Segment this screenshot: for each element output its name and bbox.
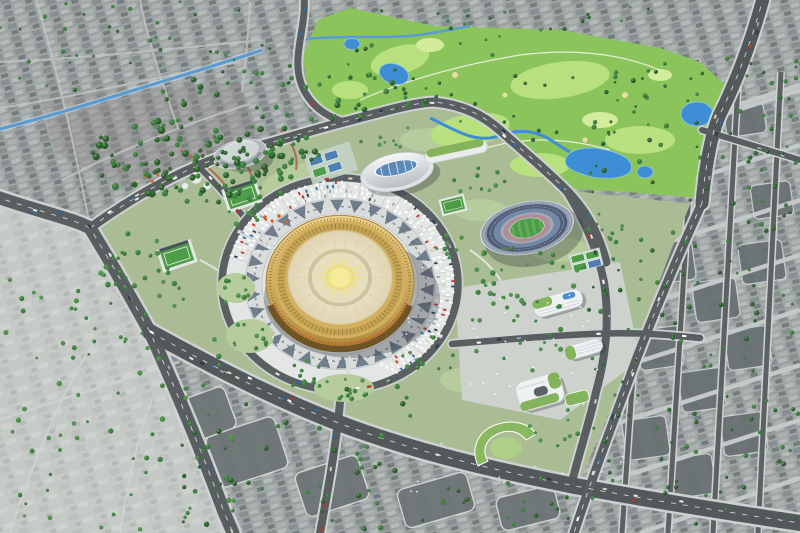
parked-car: [442, 285, 446, 287]
tree-highlight: [399, 145, 401, 147]
tree-highlight: [302, 382, 305, 385]
tree-highlight: [217, 200, 219, 202]
tree-highlight: [451, 354, 453, 356]
tree-highlight: [189, 117, 191, 119]
tree-highlight: [227, 192, 230, 195]
tree-highlight: [512, 523, 514, 525]
tree-highlight: [457, 489, 459, 491]
tree-highlight: [69, 61, 70, 62]
tree-highlight: [476, 290, 479, 293]
tree-highlight: [764, 229, 766, 231]
tree-highlight: [750, 62, 752, 64]
tree-highlight: [74, 299, 77, 302]
tree-highlight: [568, 434, 570, 436]
tree-highlight: [685, 241, 687, 243]
tree-highlight: [228, 189, 231, 192]
tree-highlight: [782, 294, 784, 296]
tree-highlight: [607, 131, 609, 133]
tree-highlight: [108, 25, 110, 27]
tree-highlight: [536, 300, 538, 302]
tree-highlight: [242, 276, 244, 278]
tree-highlight: [651, 180, 653, 182]
tree-highlight: [206, 414, 208, 416]
tree-highlight: [656, 281, 658, 283]
tree-highlight: [589, 171, 591, 173]
parked-car: [341, 181, 343, 184]
tree-highlight: [409, 414, 411, 416]
tree-highlight: [175, 186, 177, 188]
tree-highlight: [445, 252, 447, 254]
pedestrian: [256, 265, 258, 267]
pedestrian: [408, 317, 410, 319]
tree-highlight: [251, 125, 253, 127]
tree-highlight: [607, 236, 609, 238]
tree-highlight: [344, 378, 346, 380]
tree-highlight: [795, 66, 796, 67]
tree-highlight: [754, 151, 756, 153]
tree-highlight: [206, 182, 208, 184]
pedestrian: [408, 322, 410, 324]
tree-highlight: [621, 224, 623, 226]
tree-highlight: [443, 247, 445, 249]
tree-highlight: [126, 232, 129, 235]
tree-highlight: [567, 517, 569, 519]
tree-highlight: [752, 405, 754, 407]
tree-highlight: [617, 414, 619, 416]
tree-highlight: [762, 114, 764, 116]
tree-highlight: [558, 347, 561, 350]
tree-highlight: [243, 323, 245, 325]
tree-highlight: [213, 135, 215, 137]
tree-highlight: [591, 191, 592, 192]
tree-highlight: [70, 307, 72, 309]
tree-highlight: [524, 82, 526, 84]
pedestrian: [564, 304, 566, 306]
tree-highlight: [261, 328, 263, 330]
tree-highlight: [522, 500, 524, 502]
tree-highlight: [460, 236, 462, 238]
tree-highlight: [539, 348, 541, 350]
pedestrian: [504, 312, 506, 314]
tree-highlight: [659, 143, 661, 145]
tree-highlight: [312, 381, 314, 383]
tree-highlight: [521, 508, 523, 510]
tree-highlight: [232, 499, 234, 501]
pedestrian: [476, 336, 478, 338]
parked-car: [442, 280, 446, 282]
tree-highlight: [158, 457, 161, 460]
tree-highlight: [49, 473, 51, 475]
tree-highlight: [582, 265, 584, 267]
tree-highlight: [591, 357, 593, 359]
tree-highlight: [643, 94, 645, 96]
pedestrian: [502, 299, 504, 301]
tree-highlight: [766, 150, 768, 152]
tree-highlight: [758, 431, 760, 433]
pedestrian: [569, 294, 571, 296]
tree-highlight: [534, 431, 535, 432]
tree-highlight: [254, 207, 256, 209]
tree-highlight: [276, 424, 278, 426]
tree-highlight: [43, 15, 45, 17]
tree-highlight: [537, 129, 539, 131]
tree-highlight: [437, 12, 438, 13]
car: [497, 338, 502, 341]
tree-highlight: [730, 429, 732, 431]
tree-highlight: [703, 365, 705, 367]
pedestrian: [295, 353, 297, 355]
tree-highlight: [151, 120, 154, 123]
tree-highlight: [722, 346, 724, 348]
tree-highlight: [4, 330, 7, 333]
tree-highlight: [198, 84, 201, 87]
parked-car: [446, 289, 450, 291]
tree-highlight: [233, 482, 235, 484]
tree-highlight: [61, 341, 63, 343]
tree-highlight: [177, 136, 180, 139]
tree-highlight: [620, 20, 621, 21]
car: [355, 386, 360, 389]
tree-highlight: [363, 527, 365, 529]
tree-highlight: [274, 105, 277, 108]
tree-highlight: [165, 98, 167, 100]
tree-highlight: [492, 293, 494, 295]
tree-highlight: [587, 16, 589, 18]
tree-highlight: [182, 474, 184, 476]
tree-highlight: [725, 476, 727, 478]
pedestrian: [578, 298, 580, 300]
tree-highlight: [225, 476, 228, 479]
tree-highlight: [355, 470, 358, 473]
tree-highlight: [188, 421, 191, 424]
parked-car: [451, 291, 455, 293]
tree-highlight: [598, 213, 599, 214]
tree-highlight: [217, 354, 220, 357]
tree-highlight: [144, 162, 146, 164]
tree-highlight: [482, 253, 484, 255]
tree-highlight: [770, 127, 772, 129]
tree-highlight: [298, 374, 300, 376]
tree-highlight: [752, 370, 754, 372]
tree-highlight: [531, 138, 533, 140]
tree-highlight: [635, 105, 636, 106]
tree-highlight: [103, 136, 106, 139]
tree-highlight: [193, 162, 195, 164]
tree-highlight: [269, 47, 271, 49]
tree-highlight: [627, 328, 629, 330]
tree-highlight: [235, 160, 238, 163]
tree-highlight: [58, 448, 60, 450]
tree-highlight: [99, 271, 102, 274]
tree-highlight: [742, 486, 744, 488]
tree-highlight: [182, 521, 184, 523]
tree-highlight: [539, 251, 541, 253]
tree-highlight: [201, 449, 203, 451]
tree-highlight: [519, 342, 521, 344]
tree-highlight: [420, 363, 422, 365]
tree-highlight: [738, 109, 740, 111]
tree-highlight: [492, 282, 494, 284]
pedestrian: [532, 367, 534, 369]
tree-highlight: [709, 364, 711, 366]
tree-highlight: [140, 162, 142, 164]
tree-highlight: [614, 71, 616, 73]
tree-highlight: [100, 526, 102, 528]
tree-highlight: [349, 76, 351, 78]
tree-highlight: [176, 119, 178, 121]
tree-highlight: [172, 281, 175, 284]
parked-car: [451, 274, 455, 276]
tree-highlight: [449, 26, 451, 28]
tree-highlight: [362, 107, 365, 110]
tree-highlight: [395, 385, 398, 388]
tree-highlight: [679, 340, 681, 342]
tree-highlight: [170, 120, 173, 123]
tree-highlight: [416, 365, 419, 368]
tree-highlight: [480, 188, 482, 190]
tree-highlight: [694, 244, 696, 246]
tree-highlight: [224, 447, 226, 449]
tree-highlight: [240, 170, 242, 172]
tree-highlight: [459, 189, 461, 191]
tree-highlight: [688, 305, 691, 308]
tree-highlight: [512, 319, 514, 321]
tree-highlight: [284, 420, 287, 423]
tree-highlight: [219, 483, 221, 485]
tree-highlight: [200, 188, 203, 191]
tree-highlight: [227, 498, 230, 501]
pedestrian: [571, 372, 573, 374]
parked-car: [335, 181, 337, 184]
pedestrian: [505, 357, 507, 359]
tree-highlight: [485, 38, 486, 39]
tree-highlight: [729, 260, 730, 261]
tree-highlight: [793, 517, 795, 519]
tree-highlight: [587, 308, 589, 310]
tree-highlight: [609, 237, 611, 239]
tree-highlight: [195, 456, 197, 458]
tree-highlight: [104, 265, 107, 268]
tree-highlight: [671, 333, 672, 334]
tree-highlight: [639, 278, 641, 280]
tree-highlight: [18, 77, 20, 79]
tree-highlight: [166, 271, 168, 273]
tree-highlight: [384, 141, 385, 142]
pedestrian: [499, 298, 501, 300]
car: [348, 177, 353, 180]
tree-highlight: [551, 253, 553, 255]
tree-highlight: [539, 477, 541, 479]
tree-highlight: [237, 137, 240, 140]
tree-highlight: [317, 153, 319, 155]
tree-highlight: [21, 309, 23, 311]
tree-highlight: [264, 342, 266, 344]
tree-highlight: [141, 332, 143, 334]
tree-highlight: [268, 150, 271, 153]
tree-highlight: [432, 336, 434, 338]
tree-highlight: [549, 28, 550, 29]
tree-highlight: [139, 141, 142, 144]
tree-highlight: [721, 155, 723, 157]
tree-highlight: [503, 11, 505, 13]
tree-highlight: [113, 184, 117, 188]
tree-highlight: [354, 107, 356, 109]
tree-highlight: [199, 149, 201, 151]
tree-highlight: [748, 156, 750, 158]
tree-highlight: [245, 403, 247, 405]
pedestrian: [524, 340, 526, 342]
tree-highlight: [747, 220, 749, 222]
tree-highlight: [63, 27, 65, 29]
tree-highlight: [365, 445, 367, 447]
tree-highlight: [612, 257, 614, 259]
tree-highlight: [731, 201, 733, 203]
tree-highlight: [616, 99, 617, 100]
tree-highlight: [162, 124, 164, 126]
tree-highlight: [705, 187, 707, 189]
tree-highlight: [338, 397, 340, 399]
tree-highlight: [110, 302, 112, 304]
pedestrian: [553, 338, 555, 340]
tree-highlight: [136, 250, 139, 253]
tree-highlight: [586, 13, 588, 15]
tree-highlight: [402, 354, 404, 356]
tree-highlight: [262, 164, 265, 167]
tree-highlight: [318, 83, 320, 85]
tree-highlight: [496, 170, 498, 172]
tree-highlight: [182, 99, 184, 101]
tree-highlight: [566, 408, 568, 410]
tree-highlight: [277, 168, 279, 170]
tree-highlight: [405, 396, 407, 398]
tree-highlight: [506, 516, 508, 518]
tree-highlight: [134, 152, 137, 155]
tree-highlight: [317, 426, 319, 428]
tree-highlight: [555, 344, 557, 346]
tree-highlight: [189, 507, 191, 509]
tree-highlight: [639, 238, 641, 240]
tree-highlight: [696, 146, 697, 147]
tree-highlight: [161, 90, 163, 92]
tree-highlight: [333, 114, 335, 116]
pedestrian: [470, 383, 472, 385]
tree-highlight: [145, 456, 148, 459]
tree-highlight: [287, 82, 289, 84]
tree-highlight: [331, 519, 333, 521]
tree-highlight: [595, 165, 596, 166]
tree-highlight: [233, 194, 236, 197]
tree-highlight: [407, 101, 409, 103]
tree-highlight: [632, 110, 634, 112]
tree-highlight: [288, 64, 290, 66]
tree-highlight: [255, 71, 257, 73]
pedestrian: [534, 466, 536, 468]
tree-highlight: [736, 272, 737, 273]
tree-highlight: [491, 271, 494, 274]
tree-highlight: [671, 336, 673, 338]
tree-highlight: [693, 412, 695, 414]
tree-highlight: [463, 23, 465, 25]
tree-highlight: [279, 138, 282, 141]
tree-highlight: [346, 394, 348, 396]
tree-highlight: [223, 286, 225, 288]
scene-canvas: [0, 0, 800, 533]
tree-highlight: [281, 83, 283, 85]
tree-highlight: [492, 302, 494, 304]
tree-highlight: [277, 141, 280, 144]
tree-highlight: [747, 160, 749, 162]
tree-highlight: [355, 49, 357, 51]
car: [477, 341, 482, 344]
tree-highlight: [224, 300, 226, 302]
tree-highlight: [255, 334, 257, 336]
tree-highlight: [263, 173, 265, 175]
tree-highlight: [143, 276, 145, 278]
tree-highlight: [167, 176, 170, 179]
pedestrian: [562, 473, 564, 475]
car: [430, 102, 434, 104]
tree-highlight: [250, 81, 252, 83]
tree-highlight: [505, 306, 507, 308]
pedestrian: [254, 269, 256, 271]
tree-highlight: [179, 1, 180, 2]
tree-highlight: [682, 273, 684, 275]
tree-highlight: [223, 184, 226, 187]
tree-highlight: [611, 232, 613, 234]
pedestrian: [368, 206, 370, 208]
tree-highlight: [770, 81, 772, 83]
tree-highlight: [129, 62, 130, 63]
tree-highlight: [75, 54, 77, 56]
tree-highlight: [27, 60, 29, 62]
tree-highlight: [155, 251, 158, 254]
tree-highlight: [402, 88, 404, 90]
tree-highlight: [0, 27, 1, 28]
tree-highlight: [367, 489, 369, 491]
tree-highlight: [119, 335, 121, 337]
tree-highlight: [494, 184, 496, 186]
tree-highlight: [614, 75, 616, 77]
parked-car: [446, 294, 450, 296]
tree-highlight: [562, 265, 564, 267]
pedestrian: [274, 242, 276, 244]
tree-highlight: [430, 335, 432, 337]
tree-highlight: [605, 90, 607, 92]
tree-highlight: [226, 81, 228, 83]
tree-highlight: [221, 150, 223, 152]
tree-highlight: [347, 63, 348, 64]
parked-car: [332, 185, 334, 188]
tree-highlight: [602, 363, 604, 365]
tree-highlight: [437, 367, 439, 369]
tree-highlight: [760, 222, 762, 224]
tree-highlight: [406, 127, 407, 128]
tree-highlight: [255, 171, 259, 175]
tree-highlight: [35, 357, 36, 358]
tree-highlight: [202, 384, 204, 386]
tree-highlight: [157, 356, 159, 358]
tree-highlight: [610, 121, 612, 123]
tree-highlight: [752, 284, 754, 286]
tree-highlight: [245, 132, 248, 135]
tree-highlight: [725, 508, 726, 509]
tree-highlight: [224, 164, 227, 167]
tree-highlight: [738, 247, 739, 248]
tree-highlight: [217, 156, 219, 158]
tree-highlight: [539, 439, 541, 441]
tree-highlight: [264, 446, 267, 449]
tree-highlight: [278, 176, 281, 179]
